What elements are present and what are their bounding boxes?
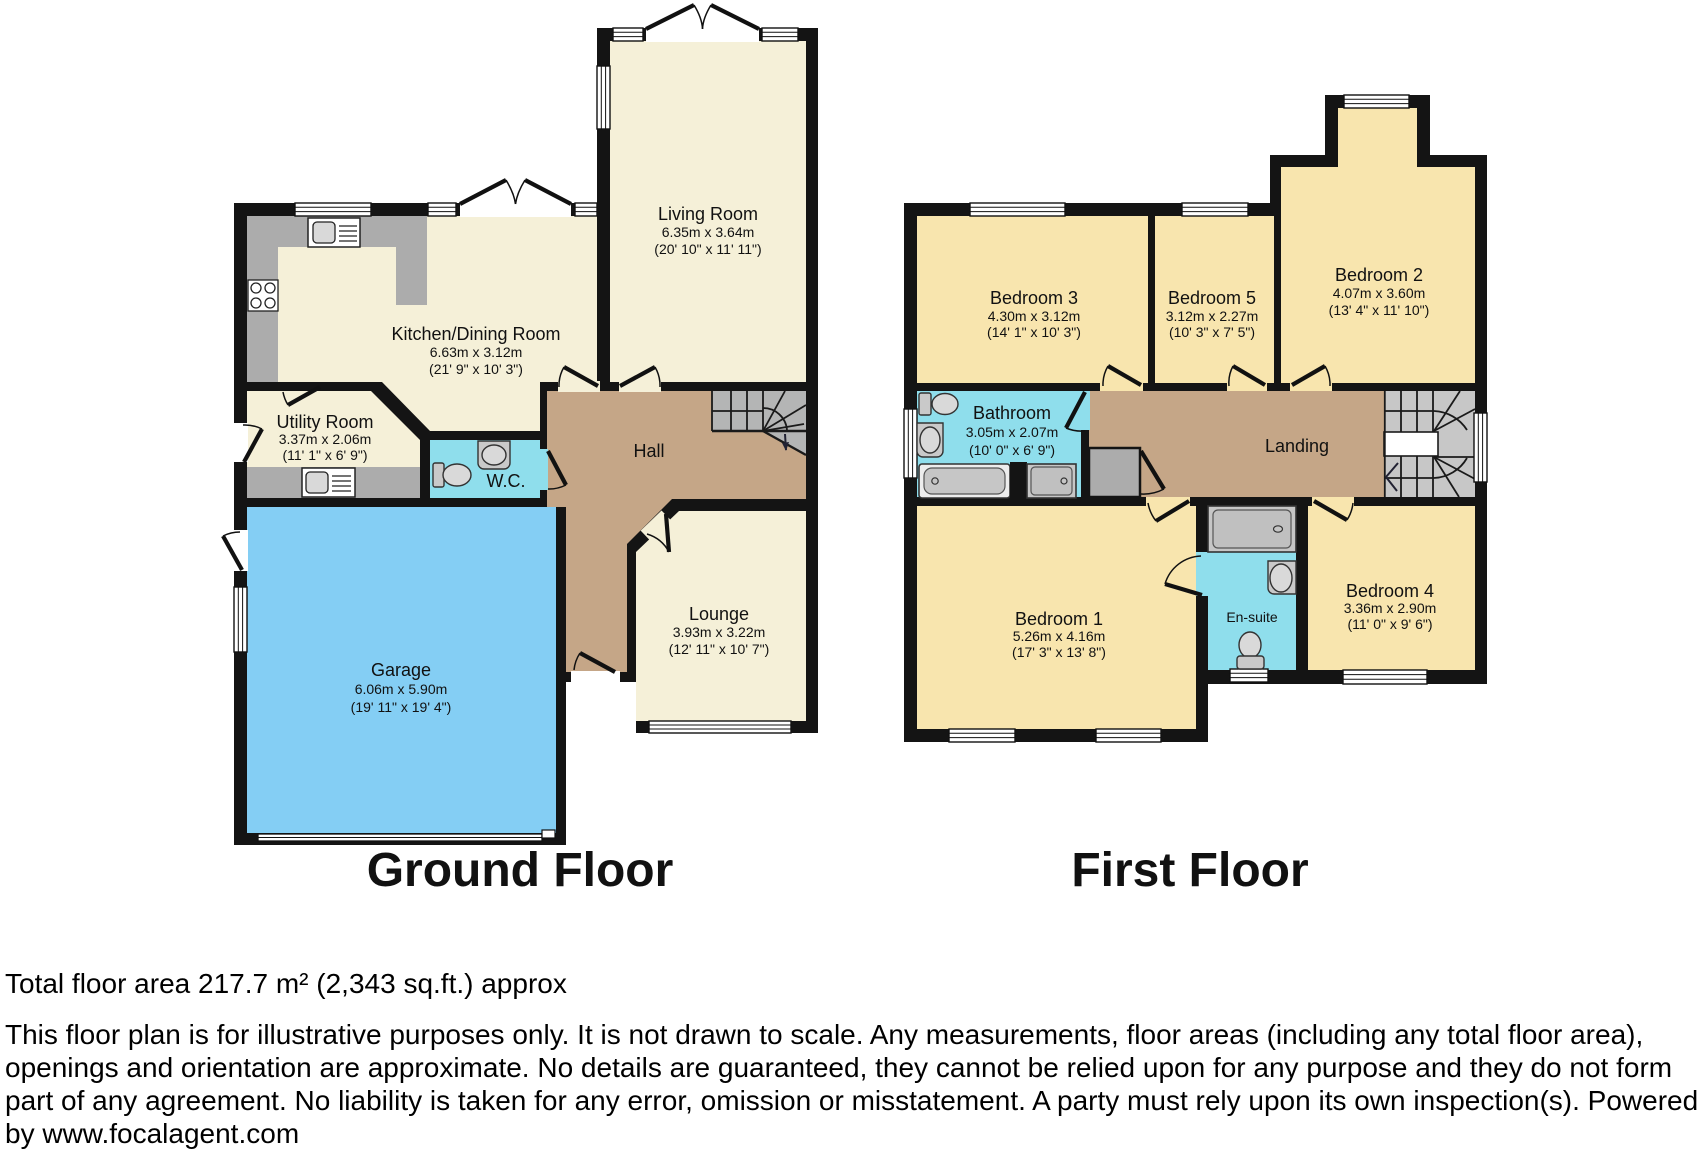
svg-text:3.93m x 3.22m: 3.93m x 3.22m <box>673 624 766 640</box>
svg-text:(10' 3" x 7' 5"): (10' 3" x 7' 5") <box>1169 324 1255 340</box>
svg-text:Lounge: Lounge <box>689 604 749 624</box>
svg-text:3.37m x 2.06m: 3.37m x 2.06m <box>279 431 372 447</box>
svg-text:4.07m x 3.60m: 4.07m x 3.60m <box>1333 285 1426 301</box>
svg-text:Bedroom 5: Bedroom 5 <box>1168 288 1256 308</box>
svg-text:Living Room: Living Room <box>658 204 758 224</box>
svg-text:(14' 1" x 10' 3"): (14' 1" x 10' 3") <box>987 324 1081 340</box>
svg-text:(11' 0" x 9' 6"): (11' 0" x 9' 6") <box>1347 616 1432 632</box>
svg-text:Bathroom: Bathroom <box>973 403 1051 423</box>
svg-text:6.06m x 5.90m: 6.06m x 5.90m <box>355 681 448 697</box>
svg-text:Utility Room: Utility Room <box>276 412 373 432</box>
svg-text:Ground Floor: Ground Floor <box>367 844 674 897</box>
svg-text:(17' 3" x 13' 8"): (17' 3" x 13' 8") <box>1012 644 1106 660</box>
svg-text:Kitchen/Dining Room: Kitchen/Dining Room <box>391 324 560 344</box>
svg-text:5.26m x 4.16m: 5.26m x 4.16m <box>1013 628 1106 644</box>
svg-text:Bedroom 2: Bedroom 2 <box>1335 265 1423 285</box>
svg-text:(11' 1" x 6' 9"): (11' 1" x 6' 9") <box>282 447 367 463</box>
svg-text:3.12m x 2.27m: 3.12m x 2.27m <box>1166 308 1259 324</box>
svg-text:(19' 11" x 19' 4"): (19' 11" x 19' 4") <box>351 699 452 715</box>
svg-text:(10' 0" x 6' 9"): (10' 0" x 6' 9") <box>969 442 1055 458</box>
svg-text:(20' 10" x 11' 11"): (20' 10" x 11' 11") <box>654 241 761 257</box>
svg-text:First Floor: First Floor <box>1071 844 1308 897</box>
svg-text:(21' 9" x 10' 3"): (21' 9" x 10' 3") <box>429 361 523 377</box>
svg-text:(12' 11" x 10' 7"): (12' 11" x 10' 7") <box>669 641 770 657</box>
svg-text:3.36m x 2.90m: 3.36m x 2.90m <box>1344 600 1437 616</box>
svg-text:Landing: Landing <box>1265 436 1329 456</box>
svg-text:W.C.: W.C. <box>487 471 526 491</box>
svg-text:4.30m x 3.12m: 4.30m x 3.12m <box>988 308 1081 324</box>
svg-text:En-suite: En-suite <box>1226 609 1278 625</box>
svg-text:6.35m x 3.64m: 6.35m x 3.64m <box>662 224 755 240</box>
svg-text:Bedroom 1: Bedroom 1 <box>1015 609 1103 629</box>
svg-text:Bedroom 4: Bedroom 4 <box>1346 581 1434 601</box>
svg-text:Bedroom 3: Bedroom 3 <box>990 288 1078 308</box>
svg-text:6.63m x 3.12m: 6.63m x 3.12m <box>430 344 523 360</box>
svg-text:(13' 4" x 11' 10"): (13' 4" x 11' 10") <box>1329 302 1430 318</box>
svg-text:Hall: Hall <box>633 441 664 461</box>
svg-text:3.05m x 2.07m: 3.05m x 2.07m <box>966 424 1059 440</box>
svg-text:Garage: Garage <box>371 660 431 680</box>
